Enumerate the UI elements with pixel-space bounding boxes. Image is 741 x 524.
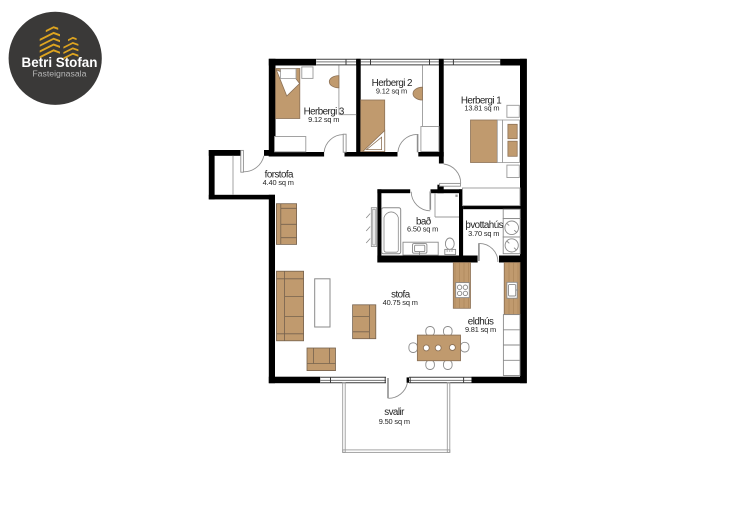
svg-text:Fasteignasala: Fasteignasala: [32, 69, 86, 79]
svg-text:13.81 sq m: 13.81 sq m: [464, 104, 499, 113]
svg-text:9.12 sq m: 9.12 sq m: [308, 115, 339, 124]
svg-text:9.12 sq m: 9.12 sq m: [376, 86, 407, 95]
svg-text:4.40 sq m: 4.40 sq m: [263, 178, 294, 187]
svg-text:3.70 sq m: 3.70 sq m: [468, 229, 499, 238]
svg-text:9.50 sq m: 9.50 sq m: [379, 417, 410, 426]
svg-text:9.81 sq m: 9.81 sq m: [465, 325, 496, 334]
svg-text:6.50 sq m: 6.50 sq m: [407, 224, 438, 233]
svg-text:40.75 sq m: 40.75 sq m: [383, 298, 418, 307]
